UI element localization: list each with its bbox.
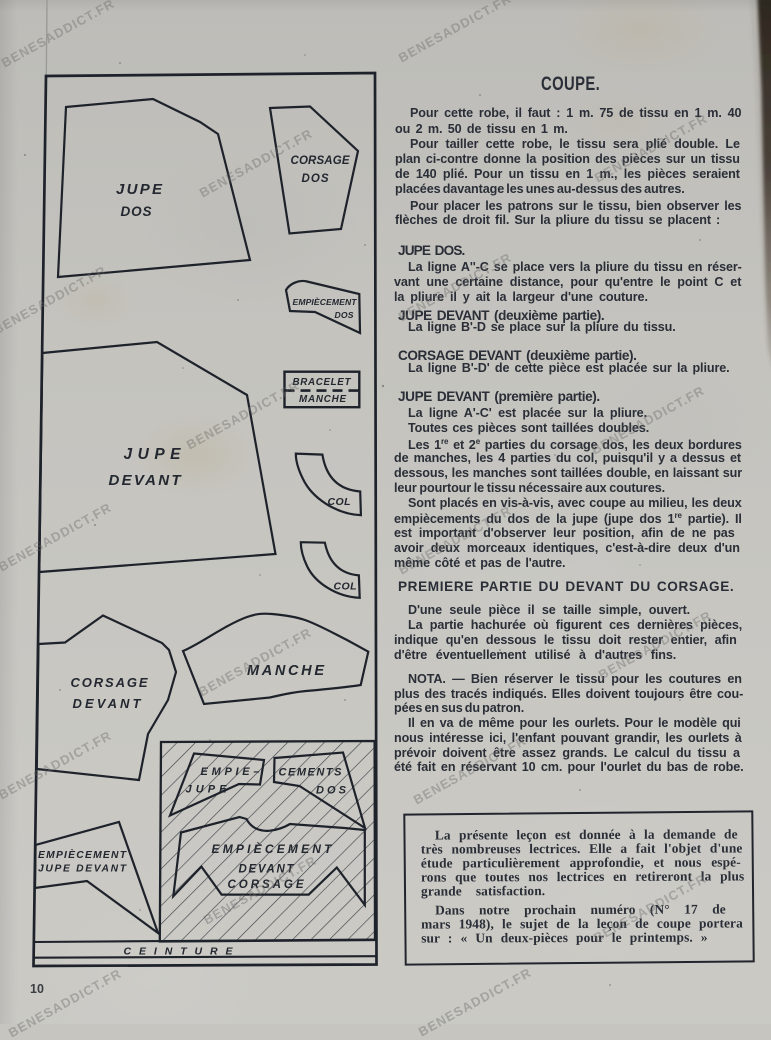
svg-text:CEMENTS: CEMENTS	[279, 767, 343, 779]
svg-text:MANCHE: MANCHE	[299, 394, 346, 405]
svg-text:DEVANT: DEVANT	[73, 696, 142, 711]
svg-text:DOS: DOS	[121, 204, 152, 219]
svg-text:COL: COL	[328, 496, 351, 508]
svg-text:10: 10	[30, 982, 44, 996]
svg-text:CEINTURE: CEINTURE	[124, 946, 234, 958]
svg-text:CORSAGE: CORSAGE	[291, 155, 350, 167]
svg-text:DOS: DOS	[302, 173, 329, 185]
svg-text:BRACELET: BRACELET	[293, 377, 352, 388]
svg-text:DOS: DOS	[316, 785, 347, 797]
svg-text:EMPIÈCEMENT: EMPIÈCEMENT	[38, 848, 128, 861]
svg-text:JUPE: JUPE	[116, 181, 163, 198]
svg-text:COL: COL	[334, 581, 357, 593]
svg-text:CORSAGE: CORSAGE	[71, 675, 148, 690]
svg-text:DOS: DOS	[335, 310, 354, 320]
svg-text:DEVANT: DEVANT	[109, 472, 183, 489]
svg-text:JUPE: JUPE	[124, 446, 182, 463]
svg-text:EMPIÈCEMENT: EMPIÈCEMENT	[212, 841, 334, 856]
svg-text:JUPE DEVANT: JUPE DEVANT	[38, 864, 128, 875]
svg-text:EMPIÈCEMENT: EMPIÈCEMENT	[293, 297, 358, 307]
